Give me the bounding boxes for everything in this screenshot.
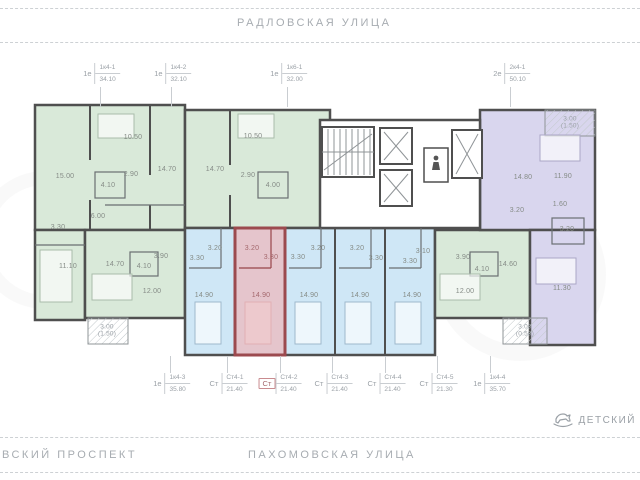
unit-area: 21.40: [276, 384, 301, 394]
unit-area: 35.70: [486, 384, 510, 394]
unit-type: Ст: [417, 379, 432, 388]
unit-area: 32.10: [167, 74, 191, 84]
unit-callout-body: Ст4-221.40: [275, 373, 301, 394]
unit-callout-body: 1к6-132.00: [282, 63, 307, 84]
unit-callout-1к4-4[interactable]: 1е1к4-435.70: [470, 373, 510, 394]
unit-area: 35.80: [166, 384, 190, 394]
unit-code: 1к4-4: [486, 373, 510, 384]
unit-callout-1к4-1[interactable]: 1е1к4-134.10: [80, 63, 120, 84]
unit-callout-body: 1к4-134.10: [95, 63, 120, 84]
unit-callout-1к6-1[interactable]: 1е1к6-132.00: [267, 63, 307, 84]
unit-callout-Ст4-1[interactable]: СтСт4-121.40: [207, 373, 248, 394]
unit-code: Ст4-5: [432, 373, 457, 384]
unit-type: 1е: [470, 379, 484, 388]
unit-code: Ст4-1: [222, 373, 247, 384]
unit-type: Ст: [365, 379, 380, 388]
unit-area: 50.10: [506, 74, 530, 84]
unit-callout-body: Ст4-121.40: [221, 373, 247, 394]
unit-code: 1к6-1: [283, 63, 307, 74]
unit-callout-body: Ст4-421.40: [379, 373, 405, 394]
unit-callout-2к4-1[interactable]: 2е2к4-150.10: [490, 63, 530, 84]
unit-type: 1е: [267, 69, 281, 78]
unit-type: Ст: [207, 379, 222, 388]
unit-type: Ст: [259, 378, 276, 389]
unit-code: Ст4-3: [327, 373, 352, 384]
unit-callout-body: Ст4-521.30: [431, 373, 457, 394]
unit-code: 2к4-1: [506, 63, 530, 74]
unit-callout-body: Ст4-321.40: [326, 373, 352, 394]
unit-code: 1к4-3: [166, 373, 190, 384]
unit-code: Ст4-4: [380, 373, 405, 384]
unit-callout-Ст4-4[interactable]: СтСт4-421.40: [365, 373, 406, 394]
unit-callout-body: 1к4-232.10: [166, 63, 191, 84]
unit-area: 21.40: [327, 384, 352, 394]
unit-code: Ст4-2: [276, 373, 301, 384]
unit-code: 1к4-2: [167, 63, 191, 74]
selected-unit-st4-2[interactable]: [235, 228, 285, 355]
unit-callout-1к4-2[interactable]: 1е1к4-232.10: [151, 63, 191, 84]
unit-callout-Ст4-3[interactable]: СтСт4-321.40: [312, 373, 353, 394]
unit-code: 1к4-1: [96, 63, 120, 74]
unit-area: 34.10: [96, 74, 120, 84]
unit-callout-Ст4-2[interactable]: СтСт4-221.40: [259, 373, 302, 394]
unit-area: 21.40: [222, 384, 247, 394]
unit-area: 21.30: [432, 384, 457, 394]
wc-icon: [424, 148, 448, 182]
unit-type: Ст: [312, 379, 327, 388]
unit-type: 2е: [490, 69, 504, 78]
unit-callout-1к4-3[interactable]: 1е1к4-335.80: [150, 373, 190, 394]
unit-callout-Ст4-5[interactable]: СтСт4-521.30: [417, 373, 458, 394]
unit-type: 1е: [151, 69, 165, 78]
unit-callout-body: 1к4-335.80: [165, 373, 190, 394]
unit-type: 1е: [150, 379, 164, 388]
unit-callout-body: 2к4-150.10: [505, 63, 530, 84]
unit-area: 21.40: [380, 384, 405, 394]
unit-type: 1е: [80, 69, 94, 78]
floorplan-page: РАДЛОВСКАЯ УЛИЦА ВСКИЙ ПРОСПЕКТ ПАХОМОВС…: [0, 0, 640, 480]
unit-area: 32.00: [283, 74, 307, 84]
unit-callout-body: 1к4-435.70: [485, 373, 510, 394]
stairs-icon: [322, 127, 374, 177]
